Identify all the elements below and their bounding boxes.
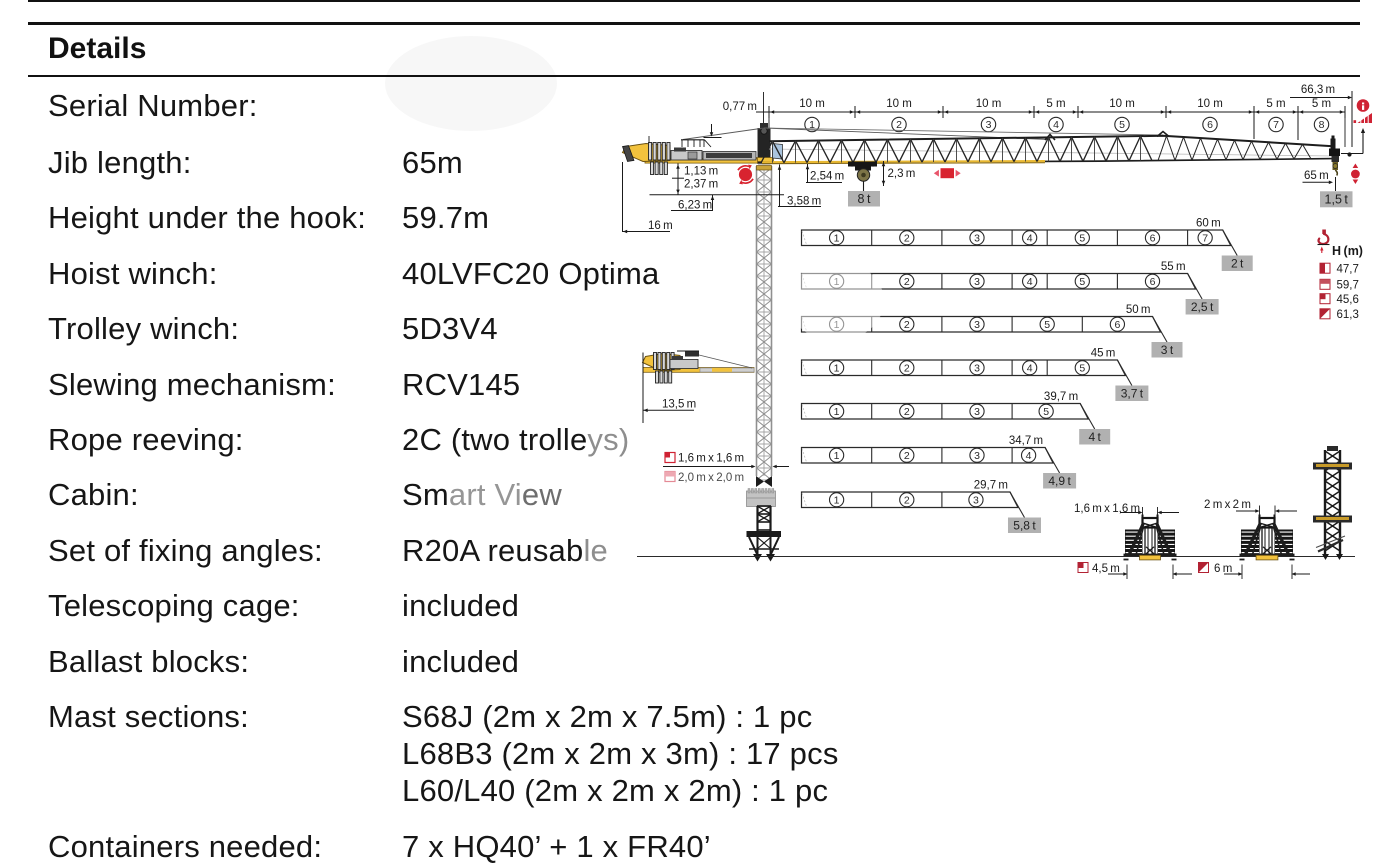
svg-text:1: 1 <box>834 450 840 462</box>
svg-text:6,23 m: 6,23 m <box>678 200 712 212</box>
svg-text:2 t: 2 t <box>1231 257 1244 271</box>
svg-text:3: 3 <box>974 232 980 244</box>
svg-text:2,54 m: 2,54 m <box>810 171 844 183</box>
svg-text:59,7: 59,7 <box>1337 280 1359 292</box>
svg-text:6: 6 <box>1150 232 1156 244</box>
svg-text:55 m: 55 m <box>1161 261 1186 273</box>
svg-text:6: 6 <box>1114 319 1120 331</box>
svg-text:34,7 m: 34,7 m <box>1009 435 1043 447</box>
svg-text:2: 2 <box>904 276 910 288</box>
svg-text:65 m: 65 m <box>1304 170 1329 182</box>
svg-text:2: 2 <box>904 450 910 462</box>
svg-text:2 m x 2 m: 2 m x 2 m <box>1204 499 1251 511</box>
svg-text:7: 7 <box>1273 119 1279 131</box>
svg-text:10 m: 10 m <box>1197 98 1223 110</box>
svg-text:1: 1 <box>834 232 840 244</box>
svg-text:1,6 m x 1,6 m: 1,6 m x 1,6 m <box>1074 503 1140 515</box>
svg-text:45,6: 45,6 <box>1337 294 1359 306</box>
svg-text:3: 3 <box>974 276 980 288</box>
svg-text:47,7: 47,7 <box>1337 264 1359 276</box>
svg-text:5: 5 <box>1119 119 1125 131</box>
svg-text:61,3: 61,3 <box>1337 309 1359 321</box>
svg-text:6: 6 <box>1207 119 1213 131</box>
svg-text:4: 4 <box>1027 362 1033 374</box>
svg-text:4,9 t: 4,9 t <box>1048 474 1071 488</box>
svg-text:6: 6 <box>1150 276 1156 288</box>
svg-text:7: 7 <box>1202 232 1208 244</box>
svg-text:2,0 m x 2,0 m: 2,0 m x 2,0 m <box>678 472 744 484</box>
svg-text:1: 1 <box>809 119 815 131</box>
svg-text:2: 2 <box>904 494 910 506</box>
svg-text:4: 4 <box>1026 450 1032 462</box>
svg-text:3 t: 3 t <box>1161 343 1174 357</box>
svg-text:5 m: 5 m <box>1312 98 1331 110</box>
svg-text:60 m: 60 m <box>1196 218 1221 230</box>
svg-text:2,3 m: 2,3 m <box>888 168 916 180</box>
svg-text:3,7 t: 3,7 t <box>1121 387 1144 401</box>
svg-text:5 m: 5 m <box>1266 98 1285 110</box>
svg-text:1,5 t: 1,5 t <box>1325 193 1349 207</box>
svg-text:4: 4 <box>1027 232 1033 244</box>
svg-text:0,77 m: 0,77 m <box>723 101 757 113</box>
svg-text:10 m: 10 m <box>1109 98 1135 110</box>
svg-text:3,58 m: 3,58 m <box>787 196 821 208</box>
svg-text:1,13 m: 1,13 m <box>684 166 718 178</box>
svg-text:16 m: 16 m <box>648 220 673 232</box>
svg-text:3: 3 <box>974 319 980 331</box>
svg-text:5 m: 5 m <box>1046 98 1065 110</box>
svg-text:3: 3 <box>974 450 980 462</box>
svg-text:50 m: 50 m <box>1126 304 1151 316</box>
svg-text:10 m: 10 m <box>976 98 1002 110</box>
svg-text:5: 5 <box>1079 362 1085 374</box>
svg-text:10 m: 10 m <box>799 98 825 110</box>
svg-text:1: 1 <box>834 406 840 418</box>
svg-text:45 m: 45 m <box>1091 348 1116 360</box>
svg-text:4: 4 <box>1053 119 1059 131</box>
svg-text:5: 5 <box>1079 232 1085 244</box>
svg-text:1,6 m x 1,6 m: 1,6 m x 1,6 m <box>678 453 744 465</box>
svg-text:1: 1 <box>834 362 840 374</box>
svg-text:66,3 m: 66,3 m <box>1301 84 1335 96</box>
svg-text:4,5 m: 4,5 m <box>1092 563 1120 575</box>
svg-text:13,5 m: 13,5 m <box>662 399 696 411</box>
svg-text:8 t: 8 t <box>858 192 871 206</box>
svg-text:3: 3 <box>974 362 980 374</box>
svg-text:29,7 m: 29,7 m <box>974 480 1008 492</box>
svg-text:5: 5 <box>1043 406 1049 418</box>
svg-text:2: 2 <box>904 362 910 374</box>
svg-text:2: 2 <box>904 319 910 331</box>
svg-text:5,8 t: 5,8 t <box>1013 519 1036 533</box>
svg-text:2,5 t: 2,5 t <box>1191 300 1214 314</box>
svg-text:6 m: 6 m <box>1214 563 1232 575</box>
svg-text:39,7 m: 39,7 m <box>1044 391 1078 403</box>
svg-text:3: 3 <box>973 494 979 506</box>
svg-text:8: 8 <box>1319 119 1325 131</box>
svg-text:5: 5 <box>1079 276 1085 288</box>
svg-text:2,37 m: 2,37 m <box>684 179 718 191</box>
svg-text:10 m: 10 m <box>886 98 912 110</box>
svg-text:5: 5 <box>1044 319 1050 331</box>
svg-text:2: 2 <box>896 119 902 131</box>
svg-text:2: 2 <box>904 232 910 244</box>
svg-text:4: 4 <box>1027 276 1033 288</box>
svg-text:4 t: 4 t <box>1088 430 1101 444</box>
svg-text:H (m): H (m) <box>1332 244 1363 258</box>
svg-text:3: 3 <box>986 119 992 131</box>
svg-text:1: 1 <box>834 494 840 506</box>
svg-text:3: 3 <box>974 406 980 418</box>
svg-text:2: 2 <box>904 406 910 418</box>
